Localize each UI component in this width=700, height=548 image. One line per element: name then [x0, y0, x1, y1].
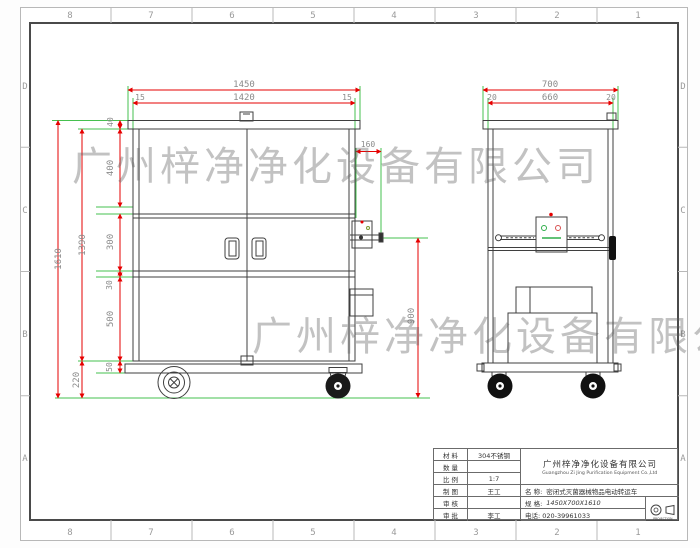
dim-base: 50	[105, 362, 114, 372]
checked-label: 审 核	[434, 497, 468, 508]
zone-letter: D	[680, 82, 685, 92]
zone-number: 6	[229, 528, 234, 538]
zone-number: 4	[391, 528, 396, 538]
zone-number: 1	[635, 528, 640, 538]
dim-rail: 30	[105, 280, 114, 290]
title-row-material: 材 料 304不锈钢	[434, 449, 520, 461]
material-value: 304不锈钢	[468, 450, 520, 460]
scale-label: 比 例	[434, 473, 468, 484]
zone-number: 2	[554, 528, 559, 538]
dim-depth-margin-right: 20	[606, 93, 616, 102]
side-handle-grip	[609, 236, 616, 260]
dim-mid-section: 300	[106, 234, 116, 250]
company-name-en: Guangzhou Zi Jing Purification Equipment…	[542, 470, 657, 475]
phone-row: 电话: 020-39961033	[521, 509, 646, 521]
spec-row: 规 格: 1450X700X1610	[521, 497, 646, 509]
product-name-value: 密闭式灭菌器械物品电动转运车	[546, 486, 637, 496]
product-name-row: 名 称: 密闭式灭菌器械物品电动转运车	[521, 485, 679, 497]
dim-lid: 40	[106, 117, 115, 127]
approved-label: 审 批	[434, 509, 468, 521]
spec-label: 规 格:	[525, 498, 542, 508]
quantity-label: 数 量	[434, 461, 468, 472]
title-row-quantity: 数 量	[434, 461, 520, 473]
zone-letter: A	[680, 454, 686, 464]
title-block-right: 广州梓净净化设备有限公司 Guangzhou Zi Jing Purificat…	[521, 449, 679, 519]
product-name-label: 名 称:	[525, 486, 542, 496]
dim-handle-height: 900	[407, 308, 417, 324]
spec-value: 1450X700X1610	[546, 499, 600, 507]
zone-number: 3	[473, 11, 478, 21]
title-row-checked: 审 核	[434, 497, 520, 509]
dim-margin-left: 15	[135, 93, 145, 102]
dim-margin-right: 15	[342, 93, 352, 102]
zone-letter: D	[22, 82, 27, 92]
company-block: 广州梓净净化设备有限公司 Guangzhou Zi Jing Purificat…	[521, 449, 679, 485]
zone-number: 7	[148, 528, 153, 538]
title-row-scale: 比 例 1:7	[434, 473, 520, 485]
drawn-value: 王工	[468, 486, 520, 496]
projection-box: PROJECTION	[647, 497, 679, 521]
dim-overall-width: 1450	[233, 80, 255, 90]
zone-number: 1	[635, 11, 640, 21]
dim-wheel-height: 220	[72, 372, 82, 388]
title-row-approved: 审 批 李工	[434, 509, 520, 521]
projection-label: PROJECTION	[653, 517, 672, 521]
dim-inner-depth: 660	[542, 93, 558, 103]
dim-top-section: 400	[106, 160, 116, 176]
title-row-drawn: 制 图 王工	[434, 485, 520, 497]
panel-dot-red-top	[549, 213, 553, 217]
zone-number: 5	[310, 11, 315, 21]
zone-number: 2	[554, 11, 559, 21]
zone-number: 5	[310, 528, 315, 538]
dim-overall-depth: 700	[542, 80, 558, 90]
phone-value: 电话: 020-39961033	[525, 510, 590, 520]
company-name-cn: 广州梓净净化设备有限公司	[543, 458, 657, 470]
zone-number: 7	[148, 11, 153, 21]
approved-value: 李工	[468, 510, 520, 520]
zone-number: 8	[67, 528, 72, 538]
dim-body-height: 1390	[78, 234, 88, 256]
zone-number: 3	[473, 528, 478, 538]
dim-inner-width: 1420	[233, 93, 255, 103]
material-label: 材 料	[434, 449, 468, 460]
zone-letter: B	[22, 330, 27, 340]
dim-overall-height: 1610	[54, 248, 64, 270]
title-block: 材 料 304不锈钢 数 量 比 例 1:7 制 图 王工 审 核 审 批 李工…	[433, 448, 678, 520]
title-block-left: 材 料 304不锈钢 数 量 比 例 1:7 制 图 王工 审 核 审 批 李工	[434, 449, 521, 519]
zone-number: 6	[229, 11, 234, 21]
projection-symbol-icon	[649, 503, 677, 517]
zone-number: 4	[391, 11, 396, 21]
front-caster-wheel	[326, 368, 351, 399]
scale-value: 1:7	[468, 475, 520, 483]
indicator-dot-red	[361, 221, 364, 224]
drawn-label: 制 图	[434, 485, 468, 496]
zone-letter: C	[680, 206, 685, 216]
zone-letter: B	[680, 330, 685, 340]
dim-depth-margin-left: 20	[487, 93, 497, 102]
dim-bottom-section: 500	[106, 311, 116, 327]
dim-handle-offset: 160	[361, 140, 376, 149]
zone-letter: A	[22, 454, 28, 464]
drawing-sheet: 8 7 6 5 4 3 2 1 8 7 6 5 4 3 2 1 D C B A …	[0, 0, 700, 548]
zone-number: 8	[67, 11, 72, 21]
zone-letter: C	[22, 206, 27, 216]
